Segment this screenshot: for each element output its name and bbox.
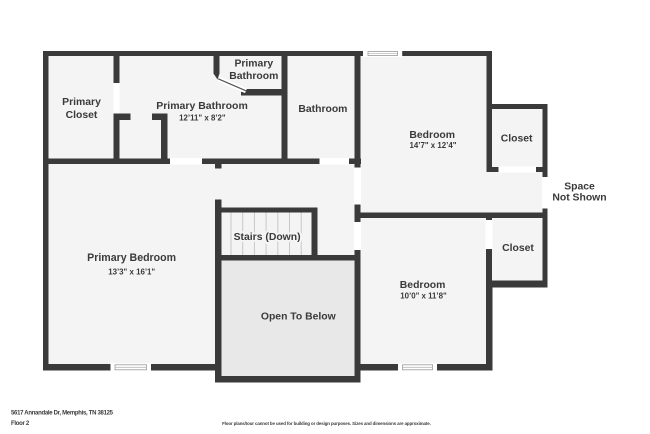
svg-text:Primary: Primary — [62, 97, 101, 108]
svg-text:Stairs (Down): Stairs (Down) — [234, 232, 301, 243]
svg-text:Space: Space — [564, 181, 595, 192]
svg-text:Not Shown: Not Shown — [552, 193, 606, 204]
svg-text:5617 Annandale Dr, Memphis, TN: 5617 Annandale Dr, Memphis, TN 38125 — [11, 410, 114, 416]
svg-text:Primary Bedroom: Primary Bedroom — [87, 252, 176, 264]
svg-text:Open To Below: Open To Below — [261, 311, 337, 322]
svg-text:Primary Bathroom: Primary Bathroom — [156, 100, 248, 112]
svg-text:Primary: Primary — [234, 59, 273, 70]
svg-text:10’0" x 11’8": 10’0" x 11’8" — [400, 291, 447, 300]
svg-text:Closet: Closet — [501, 133, 533, 144]
svg-text:Closet: Closet — [502, 243, 534, 254]
svg-text:Bathroom: Bathroom — [229, 71, 278, 82]
svg-text:13’3" x 16’1": 13’3" x 16’1" — [108, 268, 155, 277]
svg-text:Floor plans/tour cannot be use: Floor plans/tour cannot be used for buil… — [222, 421, 431, 426]
svg-text:Bedroom: Bedroom — [409, 130, 455, 141]
svg-text:14’7" x 12’4": 14’7" x 12’4" — [410, 141, 457, 150]
svg-text:Closet: Closet — [66, 110, 98, 121]
svg-text:Bathroom: Bathroom — [298, 104, 347, 115]
svg-text:Bedroom: Bedroom — [400, 280, 446, 291]
svg-text:12’11" x 8’2": 12’11" x 8’2" — [179, 114, 226, 123]
svg-text:Floor 2: Floor 2 — [11, 421, 30, 427]
